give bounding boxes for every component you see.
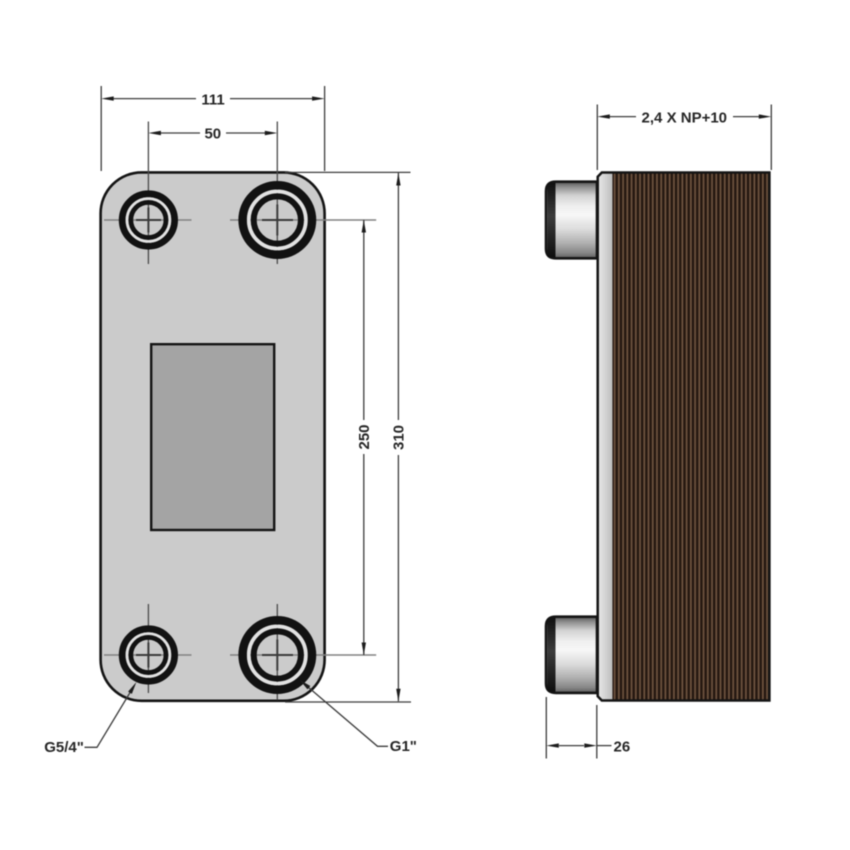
svg-text:50: 50: [204, 126, 221, 143]
svg-text:26: 26: [614, 738, 631, 755]
svg-text:111: 111: [201, 91, 224, 108]
svg-text:2,4 X NP+10: 2,4 X NP+10: [642, 109, 727, 126]
svg-text:310: 310: [391, 425, 408, 450]
svg-text:250: 250: [356, 424, 373, 449]
svg-text:G5/4": G5/4": [44, 739, 84, 756]
svg-text:G1": G1": [390, 738, 417, 755]
